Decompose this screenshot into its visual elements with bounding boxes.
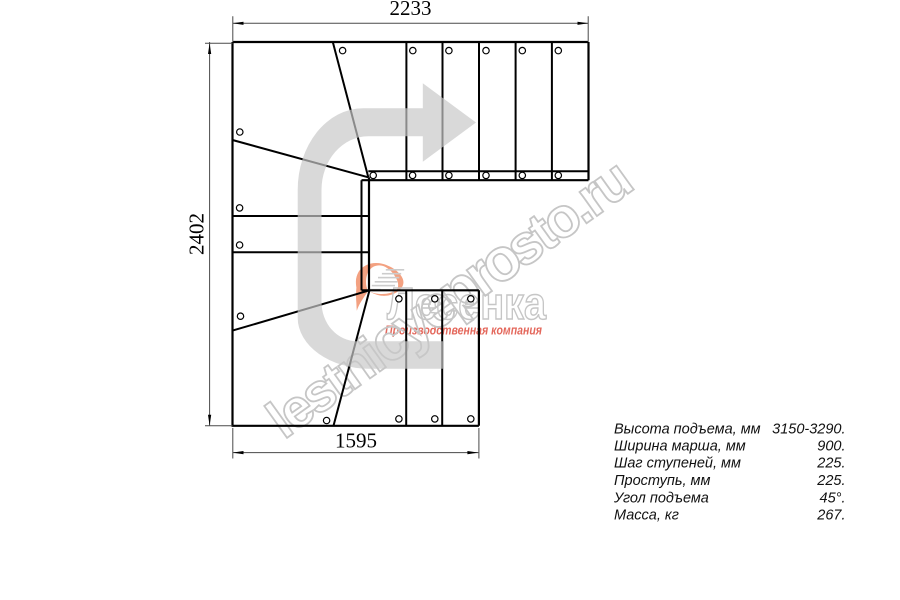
svg-text:45°.: 45°. <box>820 490 846 506</box>
svg-text:225.: 225. <box>816 473 845 489</box>
svg-text:Шаг ступеней, мм: Шаг ступеней, мм <box>614 456 741 472</box>
svg-text:267.: 267. <box>816 508 845 524</box>
svg-text:1595: 1595 <box>335 429 377 453</box>
svg-text:2402: 2402 <box>185 213 209 255</box>
svg-text:Ширина марша, мм: Ширина марша, мм <box>614 439 746 455</box>
svg-text:Высота подъема, мм: Высота подъема, мм <box>614 421 761 437</box>
svg-text:Угол подъема: Угол подъема <box>613 490 709 506</box>
svg-text:225.: 225. <box>816 456 845 472</box>
svg-text:2233: 2233 <box>390 0 432 20</box>
svg-text:3150-3290.: 3150-3290. <box>772 421 845 437</box>
svg-text:900.: 900. <box>817 439 845 455</box>
svg-text:Проступь, мм: Проступь, мм <box>614 473 710 489</box>
svg-text:Масса, кг: Масса, кг <box>614 508 679 524</box>
